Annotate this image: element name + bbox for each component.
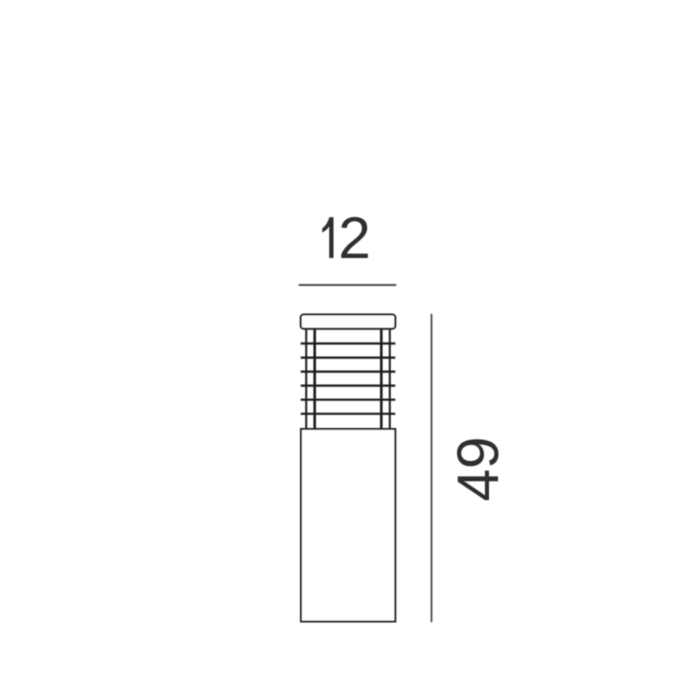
svg-text:49: 49: [446, 436, 511, 501]
svg-text:2: 2: [338, 206, 371, 271]
